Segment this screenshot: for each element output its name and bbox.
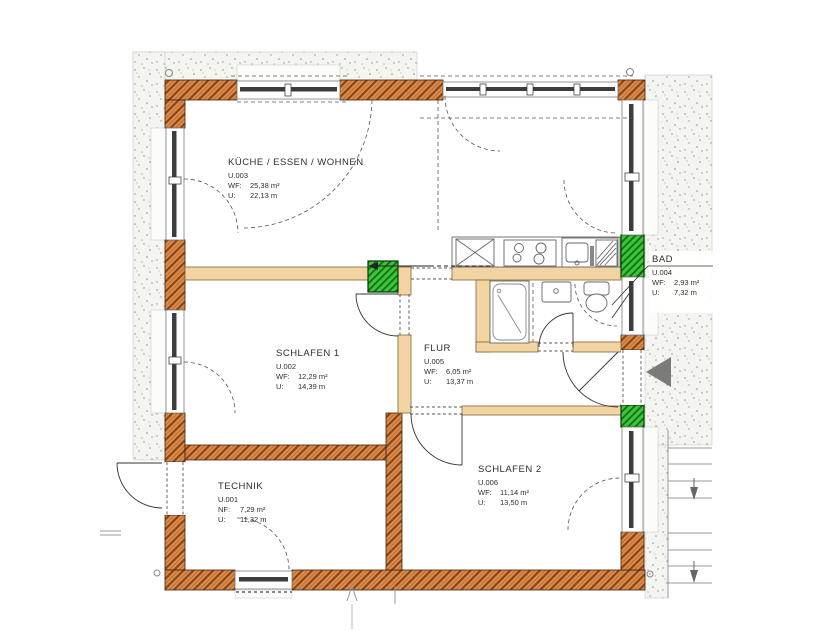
room-name: KÜCHE / ESSEN / WOHNEN bbox=[228, 157, 364, 168]
sill-left-bedroom1-window bbox=[151, 310, 166, 413]
wall-left-1 bbox=[165, 100, 185, 128]
partition-kitchen-bath bbox=[452, 267, 621, 280]
room-label-flur: FLUR U.005 WF:6,05 m² U:13,37 m bbox=[424, 343, 473, 387]
wall-left-4 bbox=[165, 515, 185, 570]
room-area: 6,05 m² bbox=[446, 367, 471, 377]
door-swings bbox=[117, 294, 618, 508]
room-perimeter: 7,32 m bbox=[674, 288, 697, 298]
room-perimeter: 22,13 m bbox=[250, 191, 277, 201]
room-id: U.006 bbox=[478, 478, 542, 488]
partition-flur-bedroom2 bbox=[462, 406, 621, 415]
wall-left-3 bbox=[165, 413, 185, 462]
room-name: SCHLAFEN 2 bbox=[478, 464, 542, 475]
room-label-schlafen2: SCHLAFEN 2 U.006 WF:11,14 m² U:13,50 m bbox=[478, 464, 542, 508]
opening-technik-exterior bbox=[165, 462, 185, 515]
wall-bottom-2 bbox=[292, 570, 645, 590]
room-label-schlafen1: SCHLAFEN 1 U.002 WF:12,29 m² U:14,39 m bbox=[276, 348, 340, 392]
window-bath bbox=[622, 277, 643, 335]
wall-right-lower bbox=[621, 532, 644, 570]
room-name: BAD bbox=[652, 254, 699, 265]
partition-bath-bottom-1 bbox=[476, 342, 538, 352]
door-entrance bbox=[563, 352, 618, 407]
room-area: 2,93 m² bbox=[674, 278, 699, 288]
kitchen-sink bbox=[562, 238, 618, 267]
wall-bottom-1 bbox=[165, 570, 235, 590]
room-id: U.003 bbox=[228, 171, 364, 181]
floor-plan: KÜCHE / ESSEN / WOHNEN U.003 WF:25,38 m²… bbox=[0, 0, 840, 630]
wall-top-3 bbox=[618, 80, 645, 100]
swing-left-bedroom1-window bbox=[184, 362, 235, 413]
window-left-bedroom1 bbox=[166, 310, 184, 413]
wall-top-1 bbox=[165, 80, 237, 100]
window-left-kitchen bbox=[166, 128, 184, 240]
sill-right-kitchen-window bbox=[644, 100, 658, 235]
window-technik-bottom bbox=[235, 571, 292, 592]
swing-right-kitchen-window bbox=[564, 180, 617, 233]
shower bbox=[490, 281, 529, 343]
partition-bedroom1-flur-lower bbox=[398, 335, 411, 413]
room-area: 11,14 m² bbox=[500, 488, 529, 498]
swing-bedroom2-window bbox=[568, 478, 620, 530]
room-name: FLUR bbox=[424, 343, 473, 354]
swing-technik-window bbox=[237, 518, 289, 570]
room-name: TECHNIK bbox=[218, 481, 267, 492]
sill-bedroom2-window bbox=[644, 427, 658, 532]
room-id: U.002 bbox=[276, 362, 340, 372]
stairs bbox=[668, 430, 712, 598]
toilet bbox=[584, 282, 609, 312]
window-top-kitchen bbox=[237, 81, 340, 99]
window-right-kitchen bbox=[622, 100, 643, 235]
swing-band-window bbox=[445, 96, 500, 151]
vent-shaft-kitchen bbox=[621, 235, 644, 277]
room-label-technik: TECHNIK U.001 NF:7,29 m² U:11,32 m bbox=[218, 481, 267, 525]
sill-top-window bbox=[237, 65, 340, 81]
wall-technik-right bbox=[386, 413, 402, 570]
wall-top-2 bbox=[340, 80, 443, 100]
cooktop bbox=[504, 240, 556, 266]
survey-marker-bottom-left bbox=[154, 570, 160, 576]
washbasin bbox=[542, 282, 571, 302]
room-perimeter: 13,37 m bbox=[446, 377, 473, 387]
room-area: 12,29 m² bbox=[298, 372, 328, 382]
partition-bath-bottom-2 bbox=[573, 342, 621, 352]
fridge bbox=[456, 239, 494, 266]
room-id: U.005 bbox=[424, 357, 473, 367]
door-bedroom1 bbox=[356, 294, 398, 336]
room-id: U.004 bbox=[652, 268, 699, 278]
window-band-top-right bbox=[443, 82, 618, 97]
survey-marker-top-right bbox=[627, 69, 634, 76]
room-label-kueche: KÜCHE / ESSEN / WOHNEN U.003 WF:25,38 m²… bbox=[228, 157, 364, 201]
sill-left-kitchen-window bbox=[151, 128, 166, 240]
bathroom-fixtures bbox=[490, 281, 609, 343]
partition-bedroom1-flur-upper bbox=[398, 267, 411, 295]
partition-bath-left bbox=[476, 280, 490, 352]
partition-kitchen-bedroom1 bbox=[185, 267, 368, 280]
wall-left-2 bbox=[165, 240, 185, 310]
room-label-bad: BAD U.004 WF:2,93 m² U:7,32 m bbox=[652, 254, 699, 298]
room-id: U.001 bbox=[218, 495, 267, 505]
window-right-bedroom2 bbox=[622, 427, 643, 532]
door-technik-exterior bbox=[117, 463, 162, 508]
vent-shaft-bedroom2 bbox=[621, 405, 644, 427]
room-perimeter: 11,32 m bbox=[240, 515, 267, 525]
wall-right-pier bbox=[621, 335, 644, 350]
stair-down-arrow-2 bbox=[690, 570, 698, 583]
room-area: 25,38 m² bbox=[250, 181, 280, 191]
door-bedroom2 bbox=[411, 414, 462, 465]
room-name: SCHLAFEN 1 bbox=[276, 348, 340, 359]
room-perimeter: 14,39 m bbox=[298, 382, 325, 392]
kitchen-unit bbox=[452, 237, 620, 267]
wall-technik-top bbox=[185, 445, 388, 460]
room-perimeter: 13,50 m bbox=[500, 498, 527, 508]
floor-plan-drawing bbox=[0, 0, 840, 630]
door-bath bbox=[539, 313, 573, 347]
room-area: 7,29 m² bbox=[240, 505, 265, 515]
